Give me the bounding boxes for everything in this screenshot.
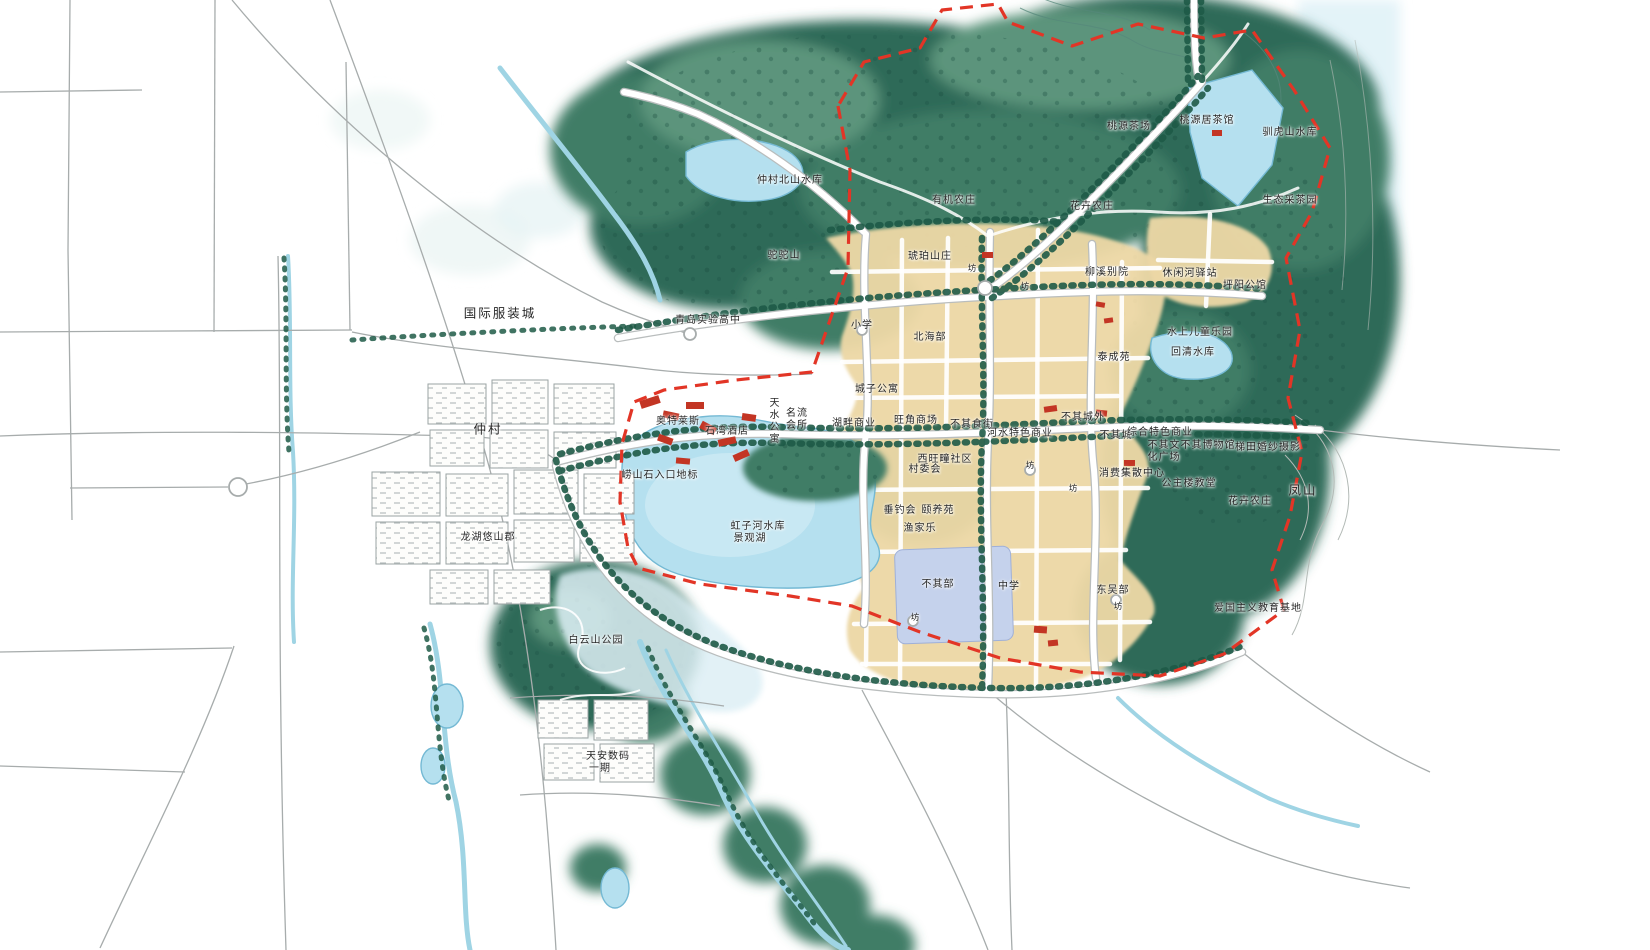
planning-map: 桃源茶场桃源居茶馆驯虎山水库生态采茶园仲村北山水库有机农庄花卉农庄驼驼山琥珀山庄… <box>0 0 1650 950</box>
map-artwork <box>0 0 1650 950</box>
